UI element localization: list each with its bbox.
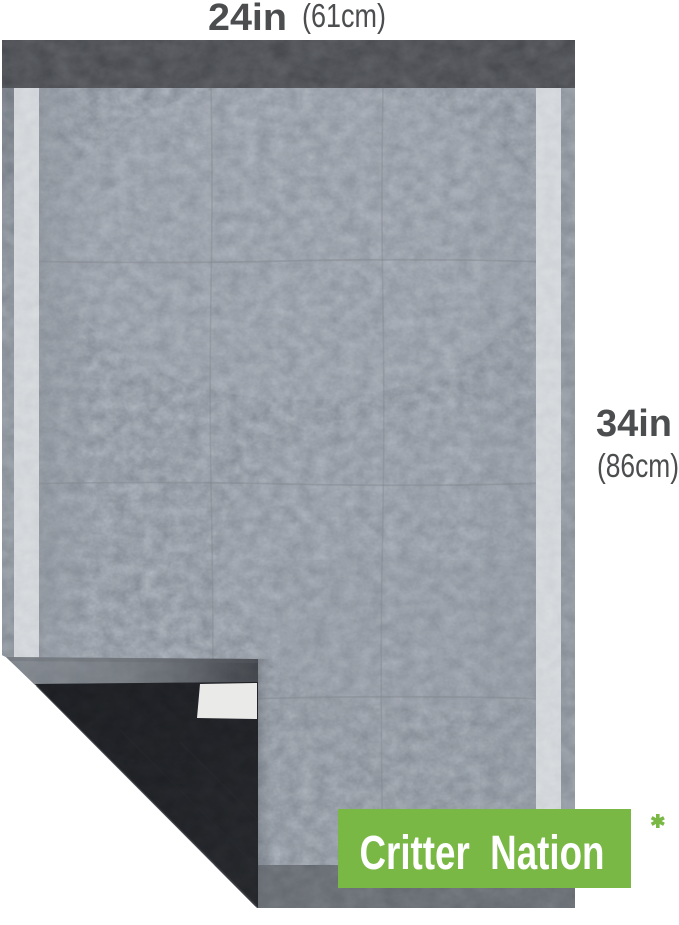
svg-text:(61cm): (61cm): [302, 0, 386, 34]
svg-text:24in: 24in: [208, 0, 287, 39]
svg-text:34in: 34in: [596, 403, 672, 445]
svg-text:Critter Nation: Critter Nation: [360, 827, 605, 880]
svg-text:(86cm): (86cm): [597, 447, 679, 484]
